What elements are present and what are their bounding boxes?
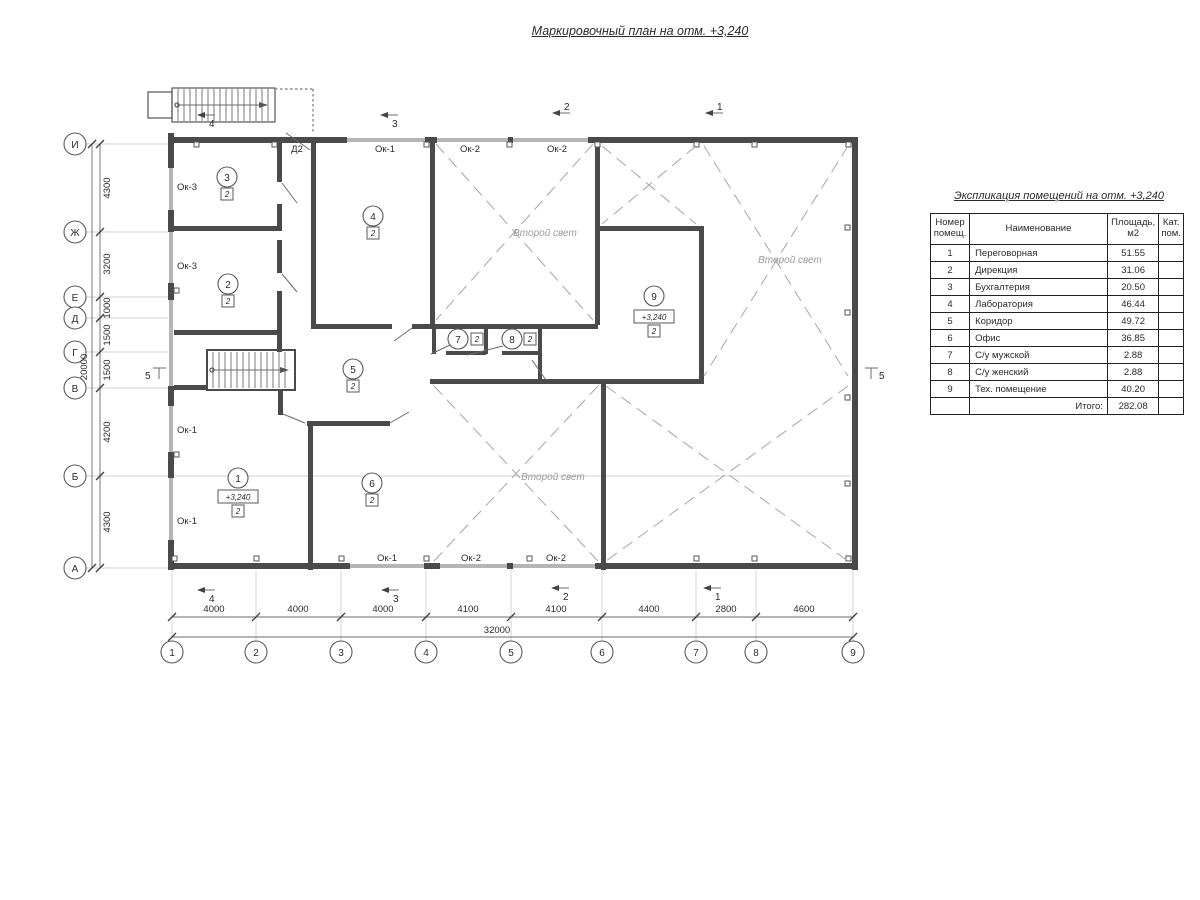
second-light-label: Второй свет (758, 255, 822, 266)
dim-left: 1000 (102, 297, 113, 318)
section-mark-3: 3 (392, 119, 398, 130)
axis-row-label: Д (72, 314, 79, 325)
axis-row-label: Е (72, 293, 79, 304)
page-title: Маркировочный план на отм. +3,240 (430, 24, 850, 38)
window-label-ok1: Ок-1 (377, 553, 397, 564)
door-label-d2: Д2 (291, 144, 303, 155)
room-number: 3 (224, 173, 230, 184)
cell-name: С/у мужской (970, 347, 1108, 364)
axis-col-label: 7 (693, 648, 699, 659)
level-mark: +3,240 (642, 313, 667, 322)
axis-row-label: Г (72, 348, 78, 359)
room-category: 2 (350, 382, 356, 391)
dim-bottom: 4000 (372, 604, 393, 615)
table-row: 6Офис36.85 (931, 330, 1184, 347)
axis-row-label: Ж (70, 228, 80, 239)
window-label-ok2: Ок-2 (547, 144, 567, 155)
col-header-name: Наименование (970, 214, 1108, 245)
room-number: 2 (225, 280, 231, 291)
room-category: 2 (527, 335, 533, 344)
table-row: 4Лаборатория46.44 (931, 296, 1184, 313)
cell-name: Офис (970, 330, 1108, 347)
cell-name: Бухгалтерия (970, 279, 1108, 296)
cell-num: 6 (931, 330, 970, 347)
cell-area: 40.20 (1107, 381, 1158, 398)
section-mark-3: 3 (393, 594, 399, 605)
room-number: 4 (370, 212, 376, 223)
axis-bubbles: И Ж Е Д Г В Б А 1 2 3 4 5 6 7 8 9 (64, 133, 864, 663)
dim-left: 4300 (102, 511, 113, 532)
section-mark-4: 4 (209, 594, 215, 605)
cell-area: 2.88 (1107, 364, 1158, 381)
cell-area: 20.50 (1107, 279, 1158, 296)
cell-num: 1 (931, 245, 970, 262)
cell-cat (1159, 330, 1184, 347)
dim-left: 4300 (102, 177, 113, 198)
cell-cat (1159, 245, 1184, 262)
cell-cat (1159, 313, 1184, 330)
cell-cat (1159, 381, 1184, 398)
cell-name: С/у женский (970, 364, 1108, 381)
table-row: 9Тех. помещение40.20 (931, 381, 1184, 398)
cell-cat (1159, 296, 1184, 313)
axis-col-label: 5 (508, 648, 514, 659)
cell-cat (1159, 279, 1184, 296)
dim-left: 1500 (102, 324, 113, 345)
axis-row-label: Б (72, 472, 79, 483)
window-label-ok3: Ок-3 (177, 261, 197, 272)
col-header-num: Номер помещ. (931, 214, 970, 245)
table-header-row: Номер помещ. Наименование Площадь, м2 Ка… (931, 214, 1184, 245)
second-light-label: Второй свет (513, 228, 577, 239)
total-label: Итого: (970, 398, 1108, 415)
window-label-ok2: Ок-2 (546, 553, 566, 564)
cell-name: Лаборатория (970, 296, 1108, 313)
col-header-area: Площадь, м2 (1107, 214, 1158, 245)
room-category: 2 (370, 229, 376, 238)
table-row: 2Дирекция31.06 (931, 262, 1184, 279)
axis-col-label: 6 (599, 648, 605, 659)
interior-walls (174, 140, 704, 570)
cell-name: Дирекция (970, 262, 1108, 279)
second-light-labels: Второй свет Второй свет Второй свет (513, 228, 822, 483)
table-row: 5Коридор49.72 (931, 313, 1184, 330)
table-row: 7С/у мужской2.88 (931, 347, 1184, 364)
floor-plan-drawing: И Ж Е Д Г В Б А 1 2 3 4 5 6 7 8 9 4000 4… (0, 0, 1200, 900)
section-mark-2: 2 (564, 102, 570, 113)
axis-row-label: А (72, 564, 79, 575)
dim-left-total: 20000 (79, 354, 90, 380)
cell-name: Переговорная (970, 245, 1108, 262)
room-category: 2 (651, 327, 657, 336)
axis-col-label: 4 (423, 648, 429, 659)
section-mark-5: 5 (879, 371, 885, 382)
cell-num: 9 (931, 381, 970, 398)
room-number: 9 (651, 292, 657, 303)
dim-bottom: 4600 (793, 604, 814, 615)
axis-col-label: 9 (850, 648, 856, 659)
dim-bottom: 4000 (203, 604, 224, 615)
axis-col-label: 3 (338, 648, 344, 659)
interior-stair (174, 350, 295, 390)
dim-bottom: 4400 (638, 604, 659, 615)
room-category: 2 (224, 190, 230, 199)
cell-area: 31.06 (1107, 262, 1158, 279)
cell-empty (931, 398, 970, 415)
cell-num: 8 (931, 364, 970, 381)
cell-area: 2.88 (1107, 347, 1158, 364)
section-mark-5: 5 (145, 371, 151, 382)
cell-area: 46.44 (1107, 296, 1158, 313)
cell-cat (1159, 364, 1184, 381)
explication-panel: Экспликация помещений на отм. +3,240 Ном… (930, 190, 1188, 415)
room-category: 2 (225, 297, 231, 306)
dim-left: 1500 (102, 359, 113, 380)
window-label-ok1: Ок-1 (375, 144, 395, 155)
cell-empty (1159, 398, 1184, 415)
table-row: 3Бухгалтерия20.50 (931, 279, 1184, 296)
cell-name: Тех. помещение (970, 381, 1108, 398)
axis-col-label: 2 (253, 648, 259, 659)
cell-area: 49.72 (1107, 313, 1158, 330)
cell-num: 3 (931, 279, 970, 296)
cell-cat (1159, 347, 1184, 364)
level-mark: +3,240 (226, 493, 251, 502)
axis-col-label: 8 (753, 648, 759, 659)
room-number: 1 (235, 474, 241, 485)
dim-bottom: 2800 (715, 604, 736, 615)
section-mark-1: 1 (717, 102, 723, 113)
room-category: 2 (369, 496, 375, 505)
section-mark-4: 4 (209, 119, 215, 130)
blueprint-page: Маркировочный план на отм. +3,240 (0, 0, 1200, 900)
room-category: 2 (235, 507, 241, 516)
table-row: 1Переговорная51.55 (931, 245, 1184, 262)
dim-bottom-total: 32000 (484, 625, 510, 636)
exterior-stair (148, 88, 313, 134)
table-row: 8С/у женский2.88 (931, 364, 1184, 381)
cell-area: 51.55 (1107, 245, 1158, 262)
table-title: Экспликация помещений на отм. +3,240 (930, 190, 1188, 202)
void-cross-lines (434, 144, 848, 561)
dim-bottom: 4100 (545, 604, 566, 615)
second-light-label: Второй свет (521, 472, 585, 483)
cell-area: 36.85 (1107, 330, 1158, 347)
section-mark-2: 2 (563, 592, 569, 603)
cell-num: 7 (931, 347, 970, 364)
window-label-ok3: Ок-3 (177, 182, 197, 193)
total-value: 282.08 (1107, 398, 1158, 415)
dim-left: 3200 (102, 253, 113, 274)
cell-num: 4 (931, 296, 970, 313)
window-label-ok1: Ок-1 (177, 425, 197, 436)
axis-row-label: И (71, 140, 78, 151)
dim-left: 4200 (102, 421, 113, 442)
cell-name: Коридор (970, 313, 1108, 330)
table-total-row: Итого: 282.08 (931, 398, 1184, 415)
dim-bottom: 4100 (457, 604, 478, 615)
explication-table: Номер помещ. Наименование Площадь, м2 Ка… (930, 213, 1184, 415)
col-header-cat: Кат. пом. (1159, 214, 1184, 245)
room-number: 7 (455, 335, 461, 346)
window-label-ok2: Ок-2 (460, 144, 480, 155)
section-mark-1: 1 (715, 592, 721, 603)
room-category: 2 (474, 335, 480, 344)
dim-bottom: 4000 (287, 604, 308, 615)
cell-num: 5 (931, 313, 970, 330)
cell-cat (1159, 262, 1184, 279)
window-label-ok1: Ок-1 (177, 516, 197, 527)
room-number: 5 (350, 365, 356, 376)
axis-row-label: В (72, 384, 79, 395)
room-number: 8 (509, 335, 515, 346)
axis-col-label: 1 (169, 648, 175, 659)
cell-num: 2 (931, 262, 970, 279)
window-label-ok2: Ок-2 (461, 553, 481, 564)
room-number: 6 (369, 479, 375, 490)
